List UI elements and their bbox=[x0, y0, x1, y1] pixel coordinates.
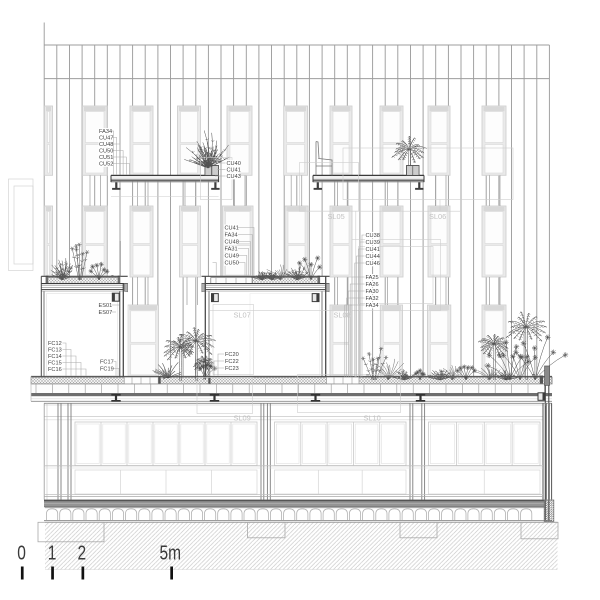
svg-text:ES07: ES07 bbox=[99, 310, 113, 316]
svg-text:FC20: FC20 bbox=[225, 352, 239, 358]
svg-text:FA34: FA34 bbox=[99, 129, 112, 135]
svg-text:FA31: FA31 bbox=[225, 247, 238, 253]
svg-text:CU49: CU49 bbox=[225, 254, 239, 260]
svg-text:FA25: FA25 bbox=[366, 275, 379, 281]
svg-text:SL10: SL10 bbox=[364, 414, 381, 423]
svg-text:CU41: CU41 bbox=[225, 226, 239, 232]
svg-text:SL05: SL05 bbox=[328, 212, 345, 221]
svg-text:CU48: CU48 bbox=[99, 142, 113, 148]
svg-text:1: 1 bbox=[48, 542, 57, 564]
svg-text:SL08: SL08 bbox=[334, 311, 351, 320]
svg-text:SL06: SL06 bbox=[429, 212, 446, 221]
svg-text:FC14: FC14 bbox=[48, 354, 62, 360]
svg-text:CU44: CU44 bbox=[366, 254, 380, 260]
svg-text:CU38: CU38 bbox=[366, 233, 380, 239]
svg-text:SL09: SL09 bbox=[234, 414, 251, 423]
svg-text:FC17: FC17 bbox=[100, 360, 114, 366]
svg-text:CU52: CU52 bbox=[99, 162, 113, 168]
svg-text:CU50: CU50 bbox=[99, 149, 113, 155]
svg-text:FA32: FA32 bbox=[366, 296, 379, 302]
svg-text:CU41: CU41 bbox=[366, 247, 380, 253]
svg-text:FC15: FC15 bbox=[48, 361, 62, 367]
svg-text:FA34: FA34 bbox=[366, 303, 379, 309]
svg-text:2: 2 bbox=[78, 542, 87, 564]
svg-text:CU47: CU47 bbox=[99, 136, 113, 142]
svg-text:FC22: FC22 bbox=[225, 359, 239, 365]
svg-text:FC19: FC19 bbox=[100, 367, 114, 373]
svg-text:CU41: CU41 bbox=[227, 168, 241, 174]
svg-text:CU51: CU51 bbox=[99, 155, 113, 161]
svg-text:FC23: FC23 bbox=[225, 366, 239, 372]
svg-text:FC13: FC13 bbox=[48, 348, 62, 354]
svg-text:CU39: CU39 bbox=[366, 240, 380, 246]
svg-text:CU46: CU46 bbox=[366, 261, 380, 267]
svg-text:FC12: FC12 bbox=[48, 341, 62, 347]
svg-text:CU48: CU48 bbox=[225, 240, 239, 246]
svg-text:5m: 5m bbox=[160, 542, 182, 564]
svg-text:CU50: CU50 bbox=[225, 261, 239, 267]
svg-text:SL07: SL07 bbox=[234, 311, 251, 320]
svg-text:CU40: CU40 bbox=[227, 161, 241, 167]
svg-text:FC16: FC16 bbox=[48, 367, 62, 373]
svg-text:0: 0 bbox=[17, 542, 26, 564]
svg-text:FA26: FA26 bbox=[366, 282, 379, 288]
svg-text:CU43: CU43 bbox=[227, 174, 241, 180]
svg-text:FA30: FA30 bbox=[366, 289, 379, 295]
svg-text:ES01: ES01 bbox=[99, 303, 113, 309]
svg-text:FA34: FA34 bbox=[225, 233, 238, 239]
